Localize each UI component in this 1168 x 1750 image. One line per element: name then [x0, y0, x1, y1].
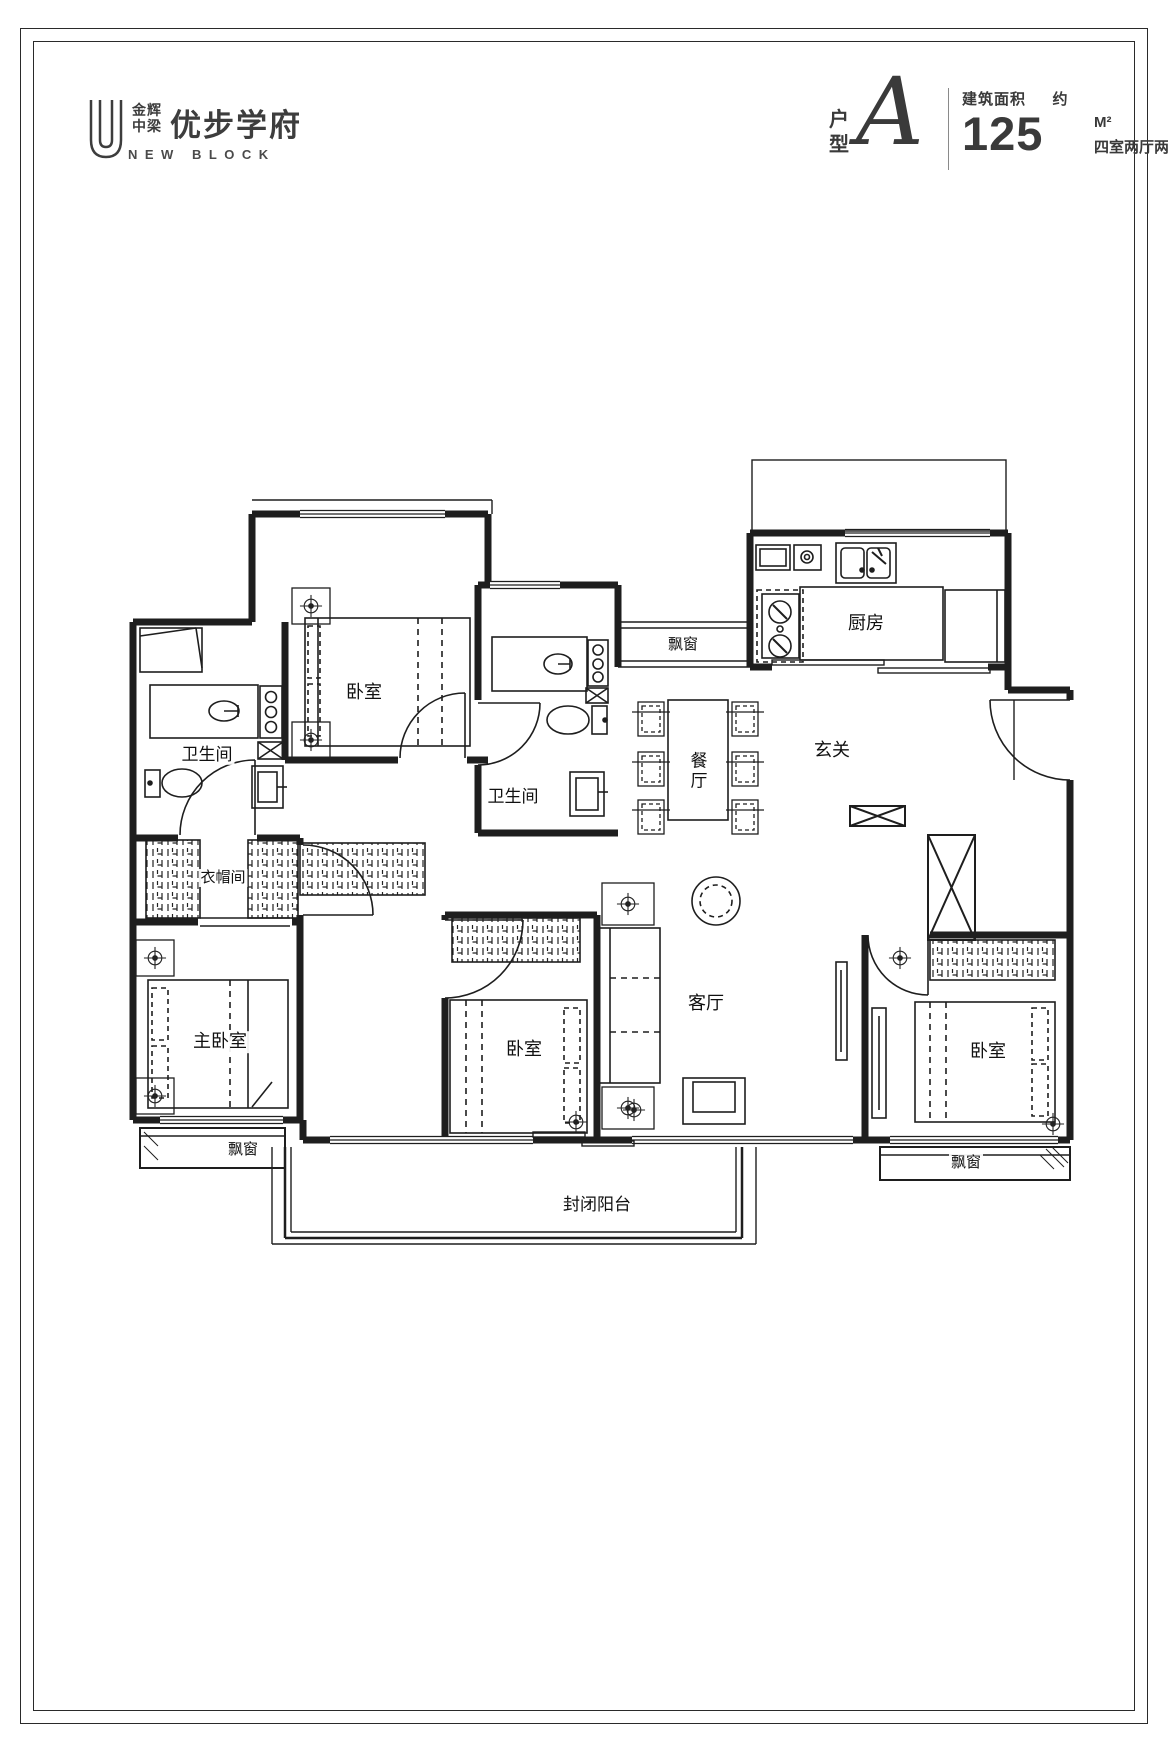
room-label-living-room: 客厅 [686, 993, 726, 1015]
room-label-master-bedroom: 主卧室 [191, 1031, 249, 1053]
room-label-bay-window-right: 飘窗 [949, 1154, 983, 1172]
room-label-bedroom-top: 卧室 [344, 682, 384, 704]
master-bedroom-furniture [136, 940, 288, 1114]
room-label-dining: 餐厅 [687, 752, 711, 793]
windows [160, 510, 1058, 1144]
room-label-bay-window-left: 飘窗 [226, 1141, 260, 1159]
room-label-bathroom2: 卫生间 [486, 787, 541, 807]
hall-cabinet [300, 843, 425, 895]
bedroom-top-furniture [292, 588, 470, 758]
bathroom1-fixtures [140, 628, 287, 808]
room-label-foyer: 玄关 [812, 740, 852, 762]
room-label-bedroom-right: 卧室 [968, 1041, 1008, 1063]
room-label-closet: 衣帽间 [198, 869, 247, 887]
room-label-bay-window-top: 飘窗 [666, 636, 700, 654]
room-label-balcony: 封闭阳台 [561, 1195, 633, 1215]
bedroom-right-furniture [872, 940, 1064, 1135]
floorplan-page: { "header": { "logo": { "brand_line1": "… [0, 0, 1168, 1750]
bedroom-middle-furniture [450, 918, 587, 1133]
room-label-bedroom-middle: 卧室 [504, 1039, 544, 1061]
shaft-boxes [850, 806, 975, 940]
room-label-kitchen: 厨房 [846, 613, 886, 635]
room-label-bathroom1: 卫生间 [180, 745, 235, 765]
floor-plan-canvas [0, 0, 1168, 1750]
kitchen-fixtures [756, 543, 1005, 662]
